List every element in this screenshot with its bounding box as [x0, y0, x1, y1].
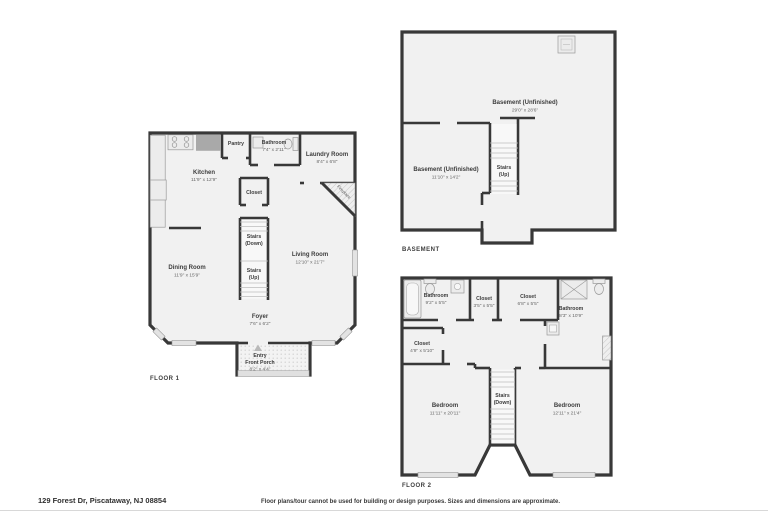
room-label: Bathroom [424, 293, 449, 299]
room-label: Bedroom [432, 403, 458, 409]
windows-f2 [418, 472, 595, 477]
room-dims: 3'5" x 5'5" [474, 303, 495, 309]
room-label: Closet [414, 341, 430, 347]
room-label: Laundry Room [306, 152, 348, 158]
room-dims: 12'10" x 21'7" [296, 260, 325, 266]
room-label: Living Room [292, 252, 328, 258]
room-dims: 8'2" x 4'4" [250, 367, 271, 373]
floor1-plan: Fireplace [140, 125, 370, 390]
basement-plan: Basement (Unfinished) 29'0" x 28'6" Base… [395, 25, 625, 250]
room-dims: 6'8" x 5'5" [518, 301, 539, 307]
property-address: 129 Forest Dr, Piscataway, NJ 08854 [38, 496, 166, 505]
room-label: Closet [476, 296, 492, 302]
appliance-icon [150, 180, 166, 200]
stairs-f2 [490, 370, 515, 444]
room-label: Kitchen [193, 170, 215, 176]
room-label: Closet [246, 190, 262, 196]
room-label: Stairs [495, 393, 510, 399]
room-label: Pantry [228, 141, 244, 147]
room-dims: 4'9" x 5'10" [410, 348, 434, 354]
room-dims: 12'11" x 21'4" [553, 411, 582, 417]
window [172, 340, 196, 345]
disclaimer-text: Floor plans/tour cannot be used for buil… [261, 499, 560, 505]
room-label: Dining Room [168, 265, 205, 271]
window [352, 250, 357, 276]
room-dims: 7'6" x 6'2" [250, 321, 271, 327]
room-label: Foyer [252, 314, 269, 320]
room-dims: 29'0" x 28'6" [512, 108, 539, 114]
room-dims: 7'4" x 2'11" [262, 147, 286, 153]
floor1-caption: FLOOR 1 [150, 376, 180, 382]
toilet-icon [593, 279, 605, 284]
toilet-icon [424, 279, 436, 284]
room-dims: 11'11" x 20'11" [430, 411, 461, 417]
refrigerator-icon [196, 135, 221, 151]
room-label: Bedroom [554, 403, 580, 409]
room-label: Entry [253, 353, 266, 359]
room-label: Basement (Unfinished) [413, 167, 478, 173]
room-label: Closet [520, 294, 536, 300]
room-dims: 11'9" x 12'9" [191, 177, 217, 183]
stairs-f1 [240, 220, 268, 299]
room-dims: 11'9" x 15'9" [174, 273, 200, 279]
window [418, 472, 458, 477]
floor2-caption: FLOOR 2 [402, 483, 432, 489]
window [312, 340, 335, 345]
room-dims: 9'2" x 5'5" [426, 300, 447, 306]
room-label: (Down) [245, 241, 263, 247]
basement-caption: BASEMENT [402, 247, 440, 253]
stove-icon [168, 135, 193, 150]
utility-box-icon [558, 36, 575, 53]
room-label: Front Porch [245, 360, 274, 366]
stairs-basement [490, 124, 518, 194]
room-label: Bathroom [262, 140, 287, 146]
room-label: Stairs [497, 165, 512, 171]
room-label: Basement (Unfinished) [492, 100, 557, 106]
bottom-divider [0, 510, 768, 511]
linen-closet-hatch [603, 336, 612, 360]
floorplan-page: Fireplace [0, 0, 768, 512]
room-label: Stairs [247, 234, 262, 240]
room-label: (Up) [499, 172, 510, 178]
room-label: Stairs [247, 268, 262, 274]
room-dims: 8'3" x 10'9" [559, 313, 583, 319]
window [553, 472, 595, 477]
room-label: (Up) [249, 275, 260, 281]
floor2-plan: Bathroom 9'2" x 5'5" Closet 3'5" x 5'5" … [395, 268, 625, 493]
room-dims: 11'10" x 14'2" [432, 175, 461, 181]
room-dims: 8'4" x 6'8" [317, 159, 338, 165]
room-label: Bathroom [559, 306, 584, 312]
room-label: (Down) [494, 400, 512, 406]
